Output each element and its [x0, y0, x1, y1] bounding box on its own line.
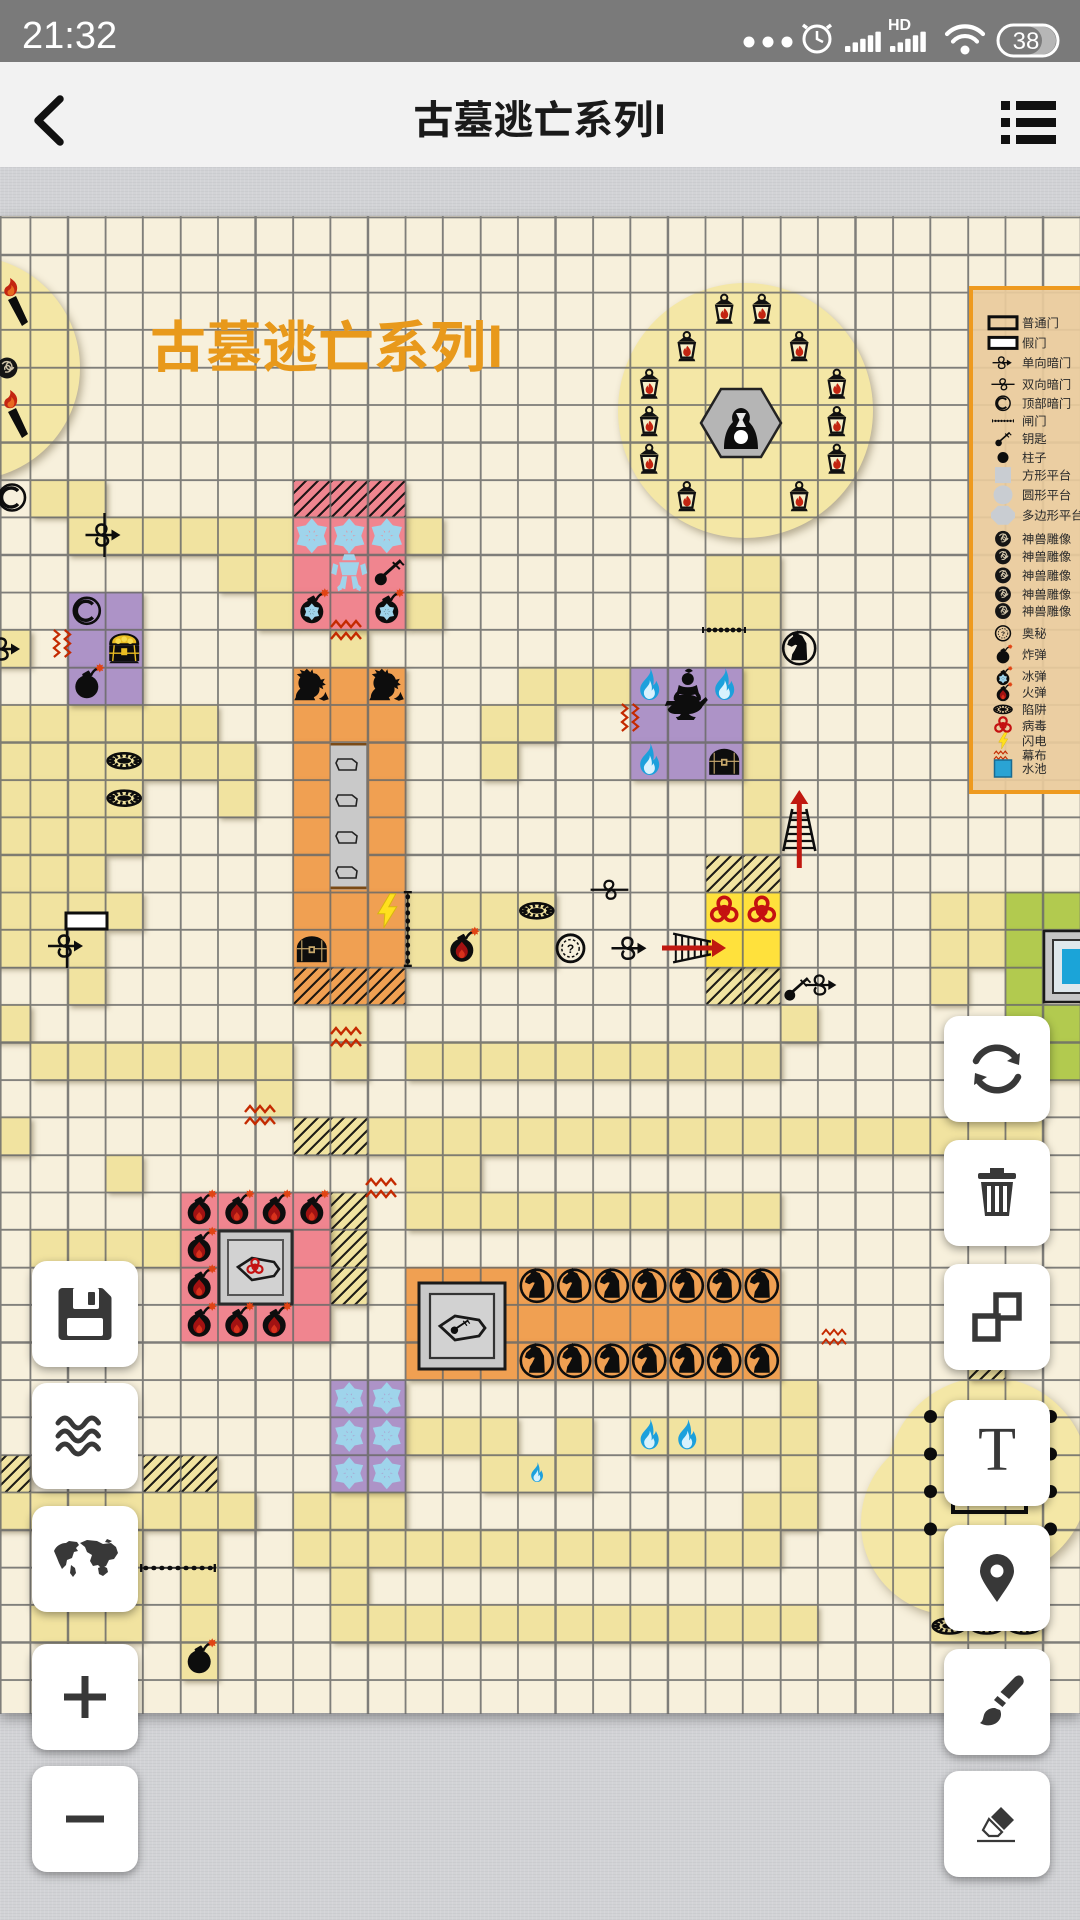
svg-text:21:32: 21:32 — [22, 15, 117, 57]
svg-text:38: 38 — [1013, 28, 1040, 55]
svg-text:T: T — [978, 1418, 1016, 1484]
svg-text:HD: HD — [888, 17, 911, 34]
